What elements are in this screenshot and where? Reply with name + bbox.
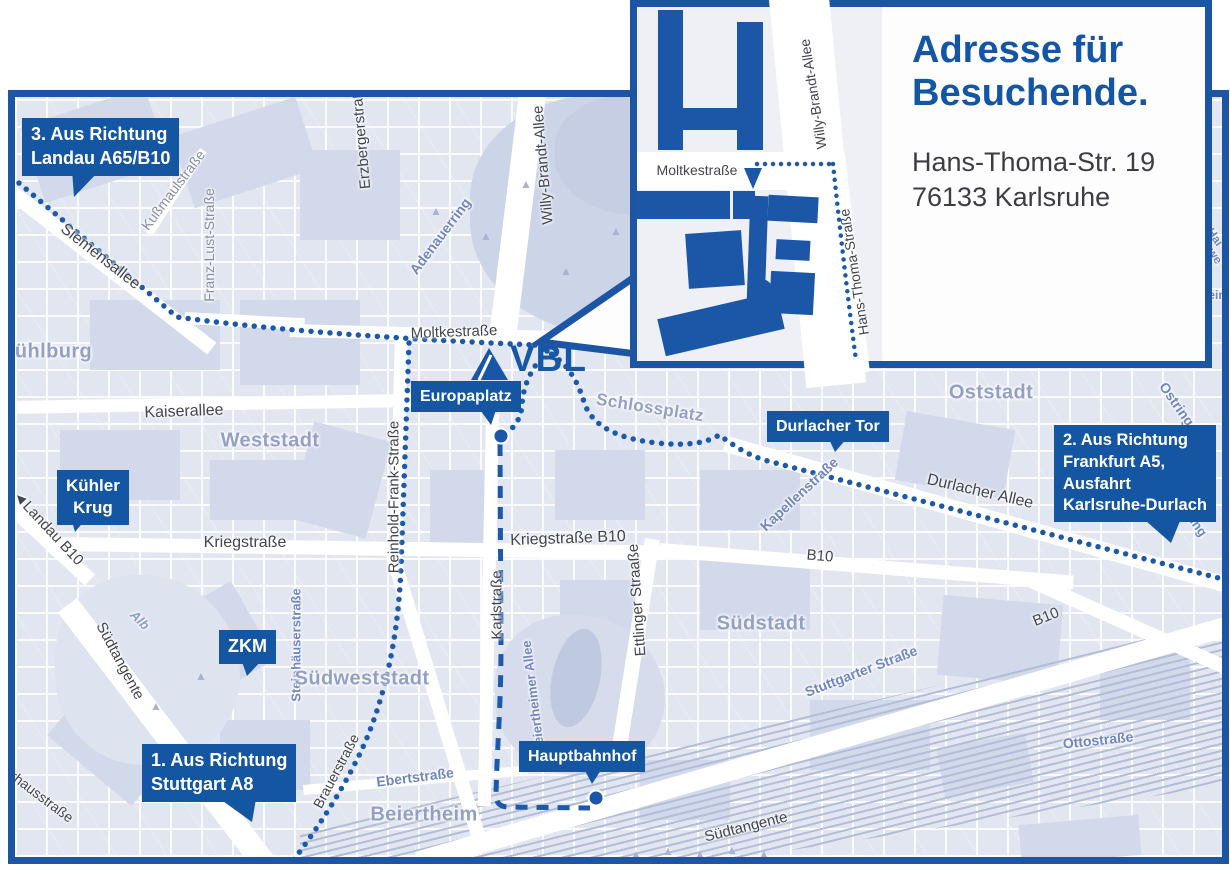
street-label: Karlstraße: [489, 570, 506, 639]
street-label: Südtangente: [93, 619, 148, 702]
street-label: Franz-Lust-Straße: [201, 188, 217, 302]
street-label: Durlacher Allee: [925, 471, 1035, 513]
vbl-logo: VBL: [470, 342, 590, 384]
street-label: Erzbergerstraße: [348, 90, 374, 190]
street-label: Ottostraße: [1062, 728, 1134, 751]
inset-street-label: Willy-Brandt-Allee: [796, 38, 829, 150]
inset-street-label: Moltkestraße: [657, 162, 738, 178]
street-label: Südtangente: [703, 808, 790, 845]
street-label: Kußmaulstraße: [138, 147, 208, 233]
street-label: Kriegstraße B10: [510, 528, 626, 550]
street-label: Pulverhausstraße: [8, 747, 77, 826]
inset-street-label: Hans-Thoma-Straße: [836, 208, 872, 337]
street-label: ◄Landau B10: [9, 487, 87, 569]
street-label: Stuttgarter Straße: [803, 642, 920, 700]
area-label: Südstadt: [717, 613, 806, 636]
inset-labels-layer: MoltkestraßeWilly-Brandt-AlleeHans-Thoma…: [637, 7, 1205, 361]
street-label: Adenauerring: [406, 195, 474, 277]
street-label: Ostring: [1156, 379, 1198, 429]
street-label: Kaiserallee: [144, 402, 224, 423]
visitor-address-inset: Adresse für Besuchende. Hans-Thoma-Str. …: [630, 0, 1212, 368]
street-label: Kapellenstraße: [757, 454, 841, 534]
street-label: Willy-Brandt-Allee: [529, 105, 556, 225]
area-label: Schlossplatz: [595, 390, 706, 427]
street-label: Alb: [127, 607, 152, 632]
area-label: Weststadt: [221, 430, 320, 453]
area-label: Beiertheim: [370, 804, 477, 827]
street-label: Beiertheimer Allee: [519, 640, 548, 755]
street-label: B10: [1030, 604, 1061, 630]
map-page: ▲▲▲▲▲▲▲▲▲▲▲▲▲ SiemensalleeKußmaulstraßeF…: [0, 0, 1230, 874]
street-label: Siemensallee: [57, 220, 144, 293]
street-label: Ostring: [1172, 493, 1211, 539]
street-label: Moltkestraße: [410, 322, 497, 342]
area-label: Oststadt: [949, 382, 1033, 405]
street-label: Ebertstraße: [375, 764, 454, 789]
street-label: Kriegstraße: [204, 534, 287, 552]
street-label: Ettlinger Straaße: [625, 543, 650, 656]
area-label: Südweststadt: [295, 668, 430, 691]
street-label: Brauerstraße: [310, 731, 362, 811]
vbl-logo-text: VBL: [510, 338, 587, 380]
area-label: Mühlburg: [8, 341, 92, 364]
vbl-triangle-icon: [470, 342, 510, 384]
street-label: B10: [806, 546, 834, 565]
street-label: Reinhold-Frank-Straße: [386, 421, 403, 574]
